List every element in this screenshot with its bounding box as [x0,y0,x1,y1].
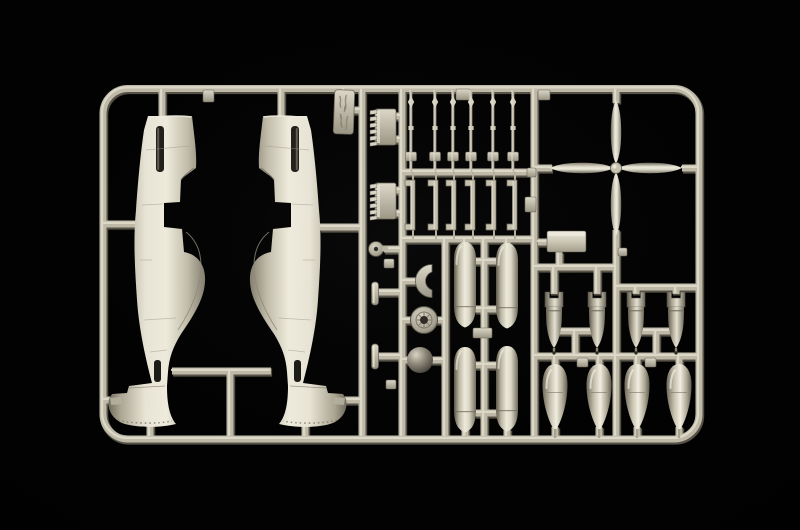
vignette-overlay [0,0,800,530]
sprue-photo [0,0,800,530]
photo-canvas [0,0,800,530]
